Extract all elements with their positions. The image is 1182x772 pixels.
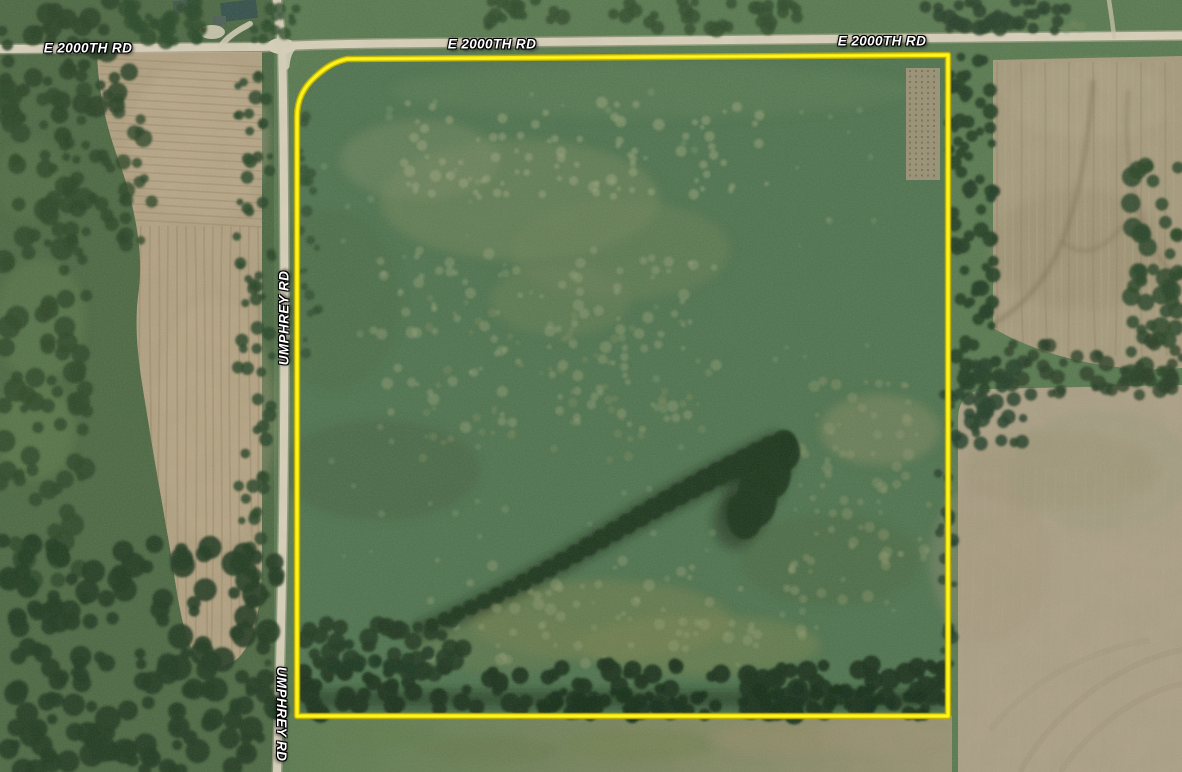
- satellite-imagery: [0, 0, 1182, 772]
- road-label-umphrey-rd-south: UMPHREY RD: [274, 667, 288, 762]
- map-container[interactable]: E 2000TH RD E 2000TH RD E 2000TH RD UMPH…: [0, 0, 1182, 772]
- road-label-e-2000th-rd-west: E 2000TH RD: [44, 41, 132, 55]
- road-label-e-2000th-rd-east: E 2000TH RD: [838, 34, 926, 48]
- road-label-e-2000th-rd-center: E 2000TH RD: [448, 37, 536, 51]
- road-label-umphrey-rd-north: UMPHREY RD: [277, 271, 291, 366]
- grain-overlay-dark: [0, 0, 1182, 772]
